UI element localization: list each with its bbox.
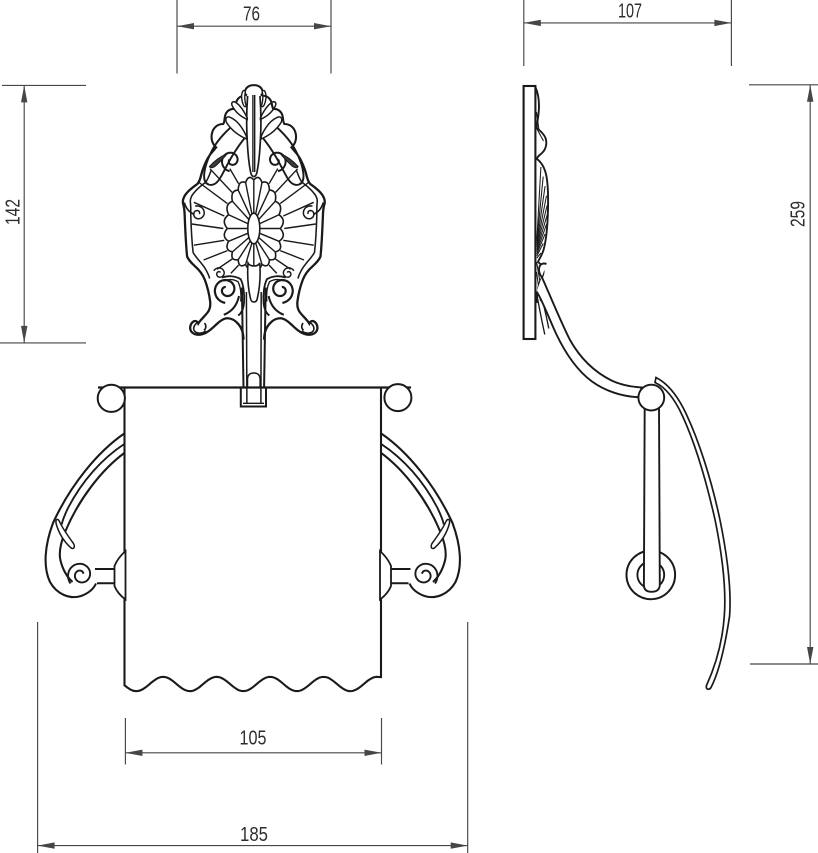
svg-text:107: 107 [618, 0, 642, 22]
svg-text:142: 142 [3, 199, 25, 225]
svg-text:259: 259 [788, 201, 810, 227]
svg-text:105: 105 [240, 728, 267, 750]
svg-text:76: 76 [243, 4, 260, 26]
svg-text:185: 185 [240, 824, 268, 846]
